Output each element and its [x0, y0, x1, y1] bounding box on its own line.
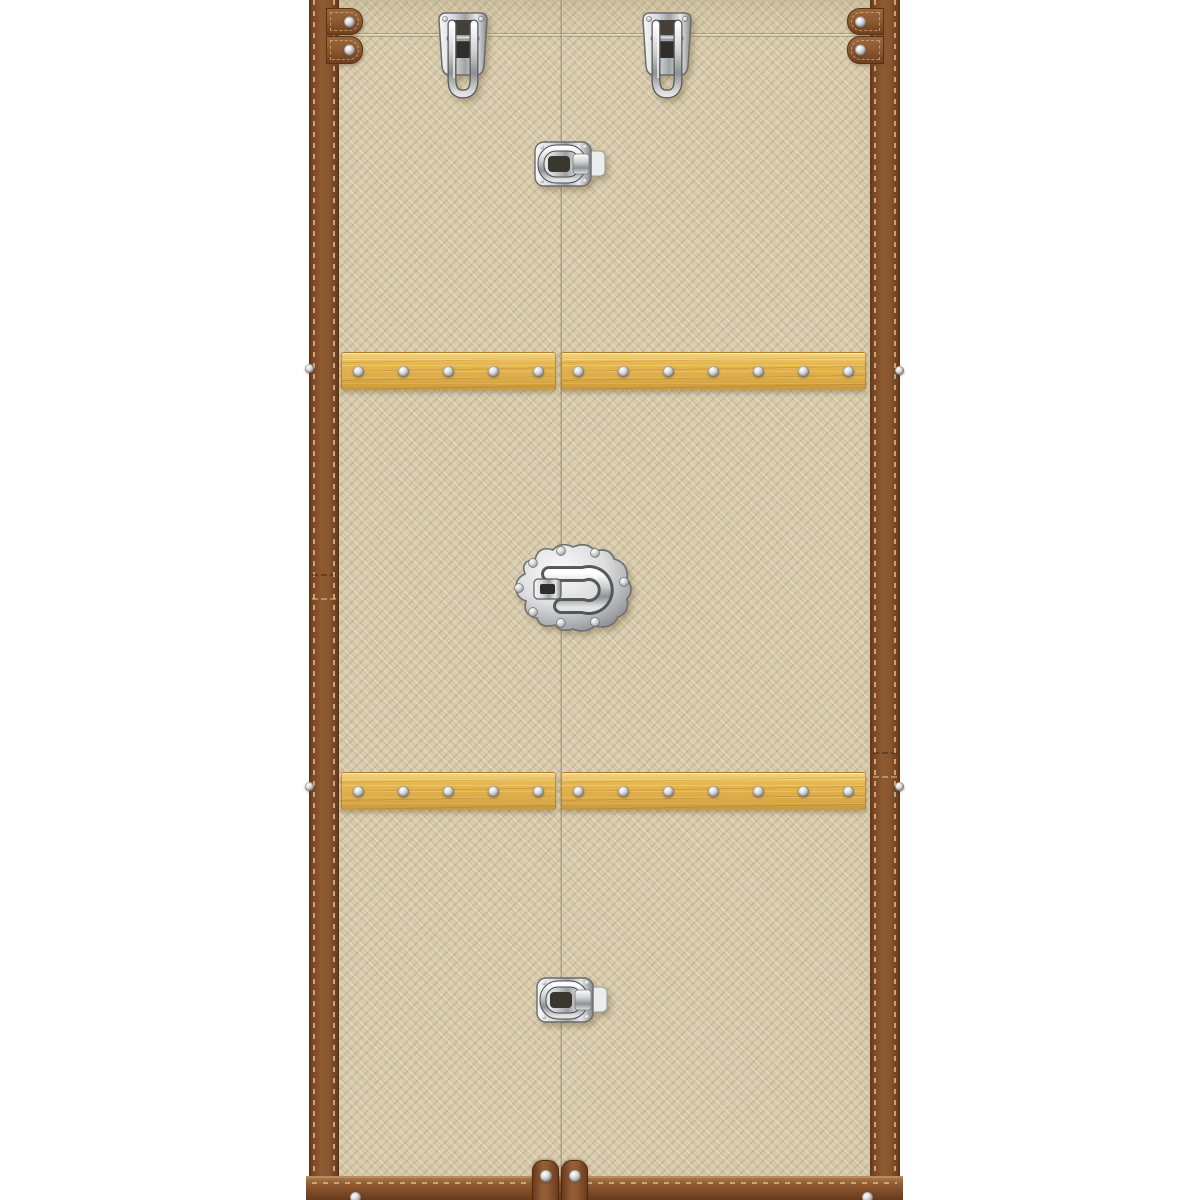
rivet: [488, 366, 499, 377]
slat-row-lower: [309, 772, 900, 812]
rivet: [843, 366, 854, 377]
rivet: [488, 786, 499, 797]
rivet: [344, 16, 355, 27]
rivet: [350, 1192, 361, 1200]
rivet: [663, 366, 674, 377]
top-stitched-seam: [339, 33, 870, 37]
oak-slat: [341, 772, 556, 810]
rivet: [708, 366, 719, 377]
leather-strap-tab: [847, 8, 884, 35]
leather-strap-tab: [532, 1160, 559, 1200]
leather-strap-tab: [326, 8, 363, 35]
rivet: [855, 16, 866, 27]
rivet: [353, 786, 364, 797]
rivet: [798, 366, 809, 377]
rivet: [573, 366, 584, 377]
leather-strap-tab: [847, 36, 884, 64]
rivet: [540, 1170, 552, 1182]
rivet: [618, 786, 629, 797]
rivet: [533, 786, 544, 797]
leather-splice: [873, 752, 897, 778]
rivet: [573, 786, 584, 797]
oak-slat: [561, 352, 866, 390]
slat-row-upper: [309, 352, 900, 392]
leather-splice: [312, 574, 336, 600]
rivet: [855, 45, 866, 56]
rivet: [398, 786, 409, 797]
rivet: [443, 786, 454, 797]
rivet: [305, 364, 314, 373]
rivet: [895, 782, 904, 791]
leather-trim-left: [309, 0, 339, 1200]
rivet: [843, 786, 854, 797]
drawbolt-latch-icon: [640, 10, 694, 106]
rivet: [618, 366, 629, 377]
rivet: [753, 366, 764, 377]
rivet: [344, 45, 355, 56]
rivet: [443, 366, 454, 377]
rivet: [533, 366, 544, 377]
leather-base-band: [306, 1176, 903, 1200]
case-latch-icon: [533, 138, 607, 190]
leather-trim-right: [870, 0, 900, 1200]
leather-strap-tab: [326, 36, 363, 64]
rivet: [798, 786, 809, 797]
rivet: [708, 786, 719, 797]
rivet: [353, 366, 364, 377]
drawbolt-latch-icon: [436, 10, 490, 106]
rivet: [398, 366, 409, 377]
rivet: [753, 786, 764, 797]
leather-strap-tab: [561, 1160, 588, 1200]
oak-slat: [561, 772, 866, 810]
trunk-cabinet: [309, 0, 900, 1200]
rivet: [663, 786, 674, 797]
rivet: [862, 1192, 873, 1200]
oak-slat: [341, 352, 556, 390]
case-latch-icon: [535, 974, 609, 1026]
trunk-lock-icon: [511, 544, 635, 632]
rivet: [305, 782, 314, 791]
product-photo: [0, 0, 1200, 1200]
rivet: [895, 366, 904, 375]
rivet: [569, 1170, 581, 1182]
